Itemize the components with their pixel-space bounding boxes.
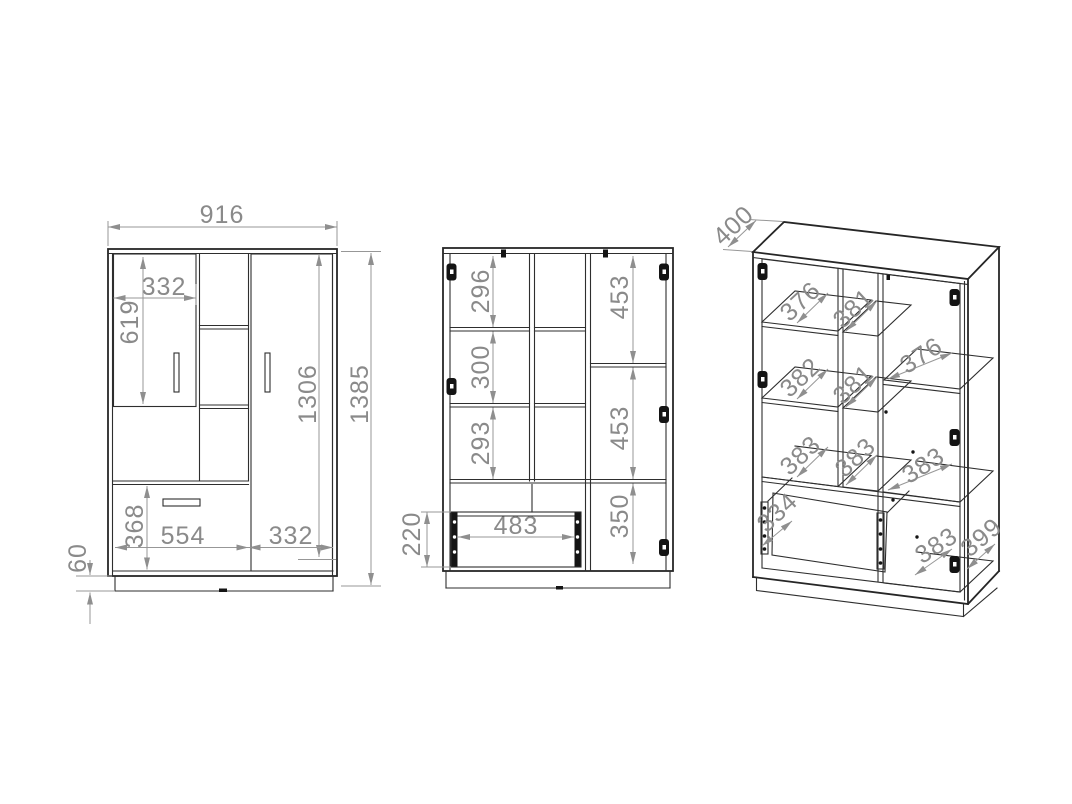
perspective-view: 400 376 382 383 334 381 381 383 376 383 … — [708, 200, 1008, 616]
dim-persp-left-shelf-1: 376 — [775, 276, 827, 327]
shelf-pin-dot — [884, 410, 887, 413]
front-dimensions: 916 332 619 1306 1385 368 554 332 60 — [64, 201, 381, 624]
front-foot-mark — [219, 589, 227, 593]
dim-interior-right-middle: 453 — [606, 406, 634, 451]
dim-persp-right-shelf-2: 383 — [897, 442, 950, 490]
dim-persp-drawer-depth: 334 — [752, 487, 804, 538]
dim-persp-mid-shelf-1: 381 — [828, 283, 880, 334]
dim-front-total-height: 1385 — [346, 364, 374, 424]
wall-bracket-icon — [501, 250, 506, 258]
dim-interior-right-lower: 350 — [606, 494, 634, 539]
dim-front-plinth-height: 60 — [64, 543, 92, 573]
dim-interior-drawer-height: 220 — [398, 512, 426, 557]
dim-interior-right-upper: 453 — [606, 275, 634, 320]
dim-interior-drawer-width: 483 — [494, 512, 539, 540]
dim-front-left-door-width: 332 — [142, 273, 187, 301]
shelf-pin-dot — [887, 275, 891, 280]
front-left-door-handle — [174, 353, 179, 392]
dim-front-drawer-height: 368 — [121, 504, 149, 549]
dim-front-left-door-height: 619 — [116, 300, 144, 345]
dim-front-drawer-width: 554 — [161, 522, 206, 550]
interior-foot-mark — [556, 586, 563, 590]
interior-dimensions: 296 300 293 453 453 350 483 220 — [398, 256, 634, 567]
dim-interior-lower-compartment: 293 — [467, 421, 495, 466]
front-right-door-handle — [265, 353, 270, 392]
front-interior-view: 296 300 293 453 453 350 483 220 — [398, 248, 673, 590]
dim-persp-right-shelf-1: 376 — [895, 332, 948, 380]
shelf-pin-dot — [915, 535, 918, 538]
wall-bracket-icon — [603, 250, 608, 258]
perspective-cabinet-structure — [753, 222, 999, 617]
dim-persp-left-shelf-2: 382 — [775, 352, 827, 403]
dim-persp-mid-shelf-3: 383 — [830, 432, 882, 483]
dim-persp-top-depth: 400 — [708, 200, 760, 251]
dim-persp-mid-shelf-2: 381 — [828, 359, 880, 410]
dim-front-right-door-width: 332 — [269, 522, 314, 550]
shelf-pin-dot — [911, 450, 914, 453]
front-drawer-handle — [163, 499, 200, 506]
dim-front-inner-height: 1306 — [294, 364, 322, 424]
dim-persp-left-shelf-3: 383 — [775, 430, 827, 481]
dim-interior-top-compartment: 296 — [467, 269, 495, 314]
drawing-svg: 916 332 619 1306 1385 368 554 332 60 — [0, 0, 1072, 804]
furniture-dimension-drawing: 916 332 619 1306 1385 368 554 332 60 — [0, 0, 1072, 804]
dim-interior-middle-compartment: 300 — [467, 345, 495, 390]
front-exterior-view: 916 332 619 1306 1385 368 554 332 60 — [64, 201, 381, 624]
dim-front-total-width: 916 — [200, 201, 245, 229]
shelf-pin-dot — [891, 498, 894, 501]
